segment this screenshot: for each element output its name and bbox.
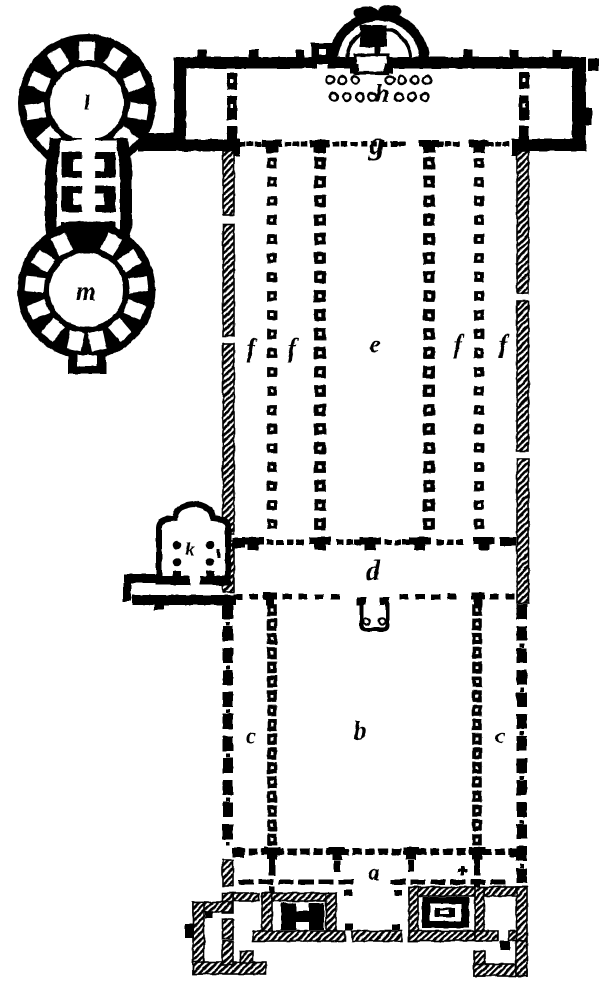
svg-text:e: e (370, 332, 381, 358)
svg-text:h: h (375, 79, 389, 108)
svg-text:d: d (366, 556, 381, 587)
svg-text:c: c (246, 723, 256, 748)
svg-text:f: f (454, 330, 465, 359)
svg-text:c: c (495, 723, 505, 748)
svg-text:k: k (186, 539, 195, 559)
svg-text:a: a (368, 860, 380, 886)
svg-text:l: l (84, 90, 91, 115)
svg-text:b: b (354, 716, 367, 745)
svg-text:m: m (76, 277, 96, 306)
svg-text:f: f (499, 330, 510, 359)
svg-text:f: f (247, 334, 258, 363)
svg-text:f: f (288, 334, 299, 363)
